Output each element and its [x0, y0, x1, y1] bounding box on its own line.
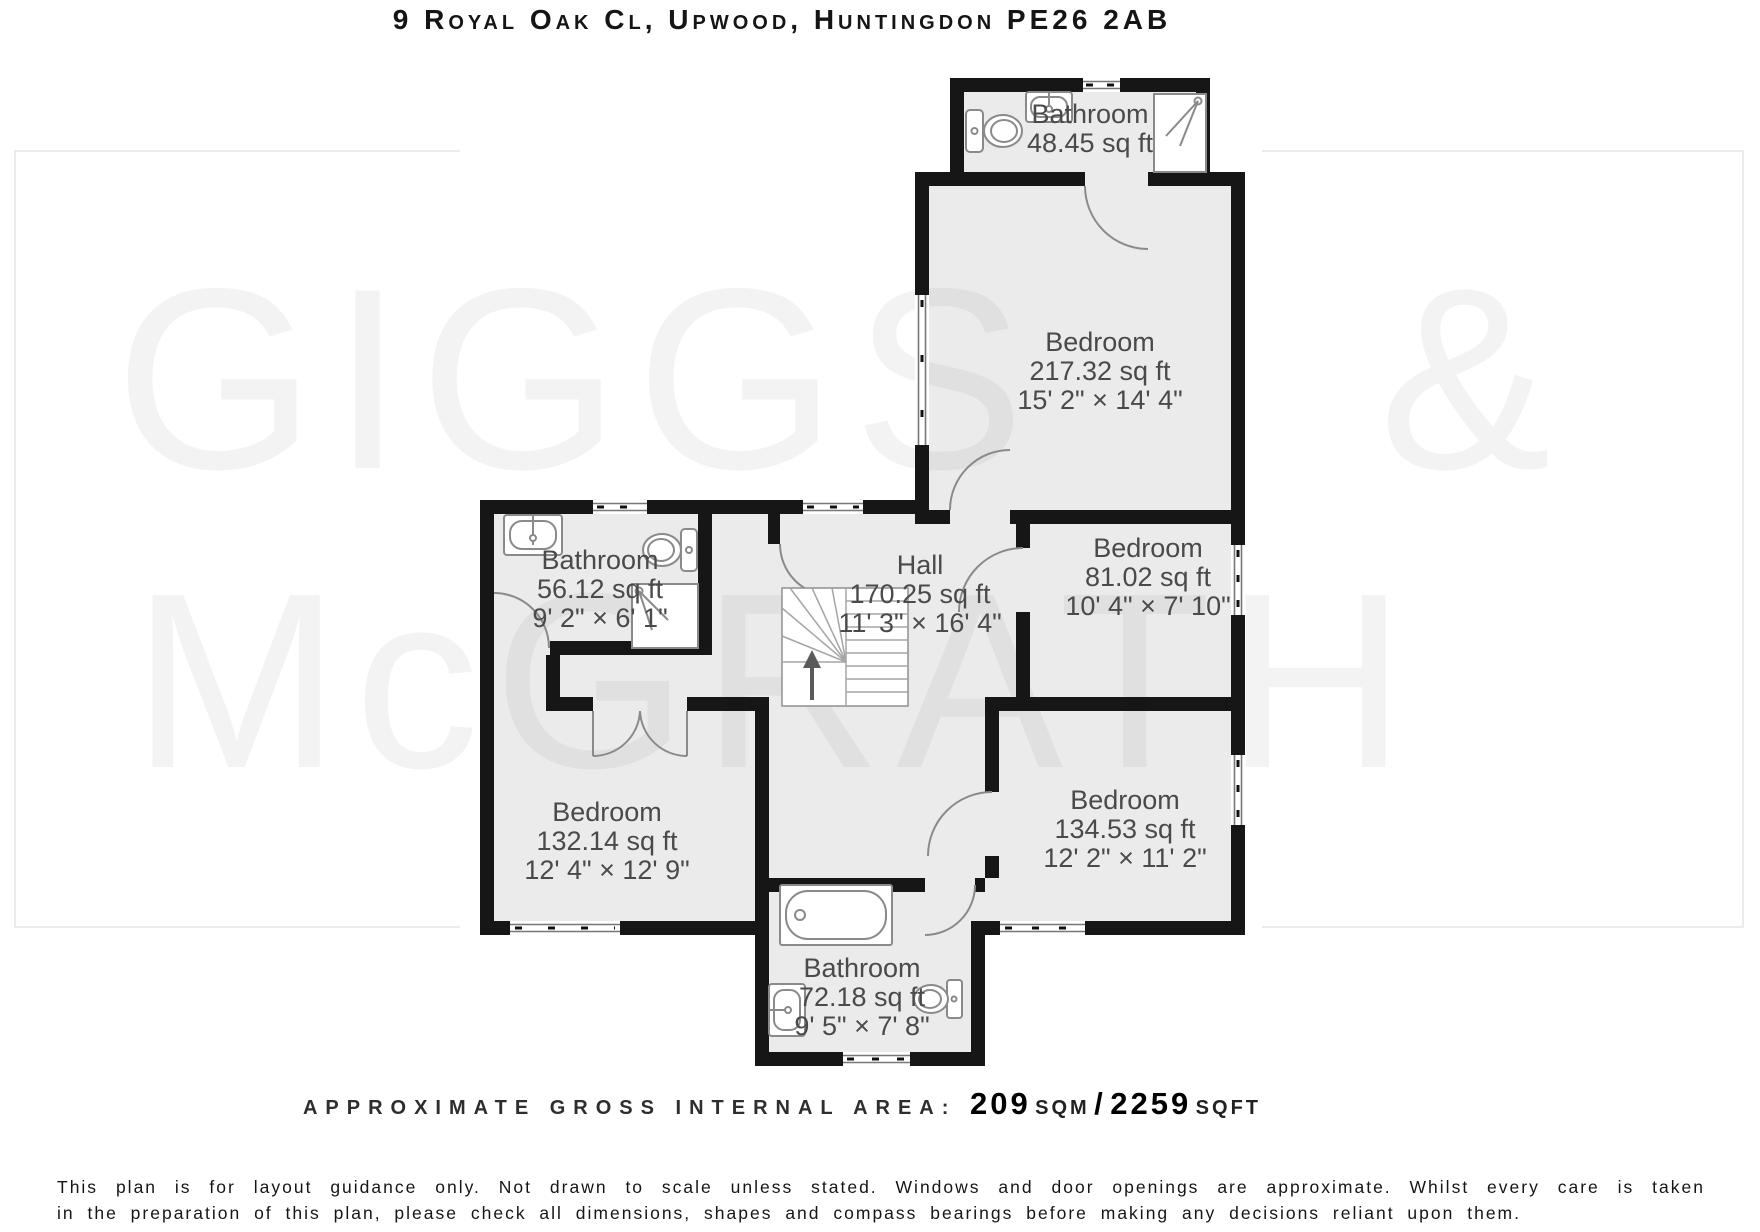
window-icon [1000, 921, 1085, 935]
room-label-bathroom-middle: Bathroom 56.12 sq ft 9' 2" × 6' 1" [532, 546, 667, 633]
area-separator: / [1094, 1086, 1106, 1121]
room-area: 134.53 sq ft [1043, 815, 1206, 844]
area-sqft-unit: SQFT [1196, 1097, 1261, 1119]
area-sqm-value: 209 [970, 1086, 1031, 1121]
room-name: Bedroom [1065, 534, 1230, 563]
disclaimer-text: This plan is for layout guidance only. N… [57, 1174, 1705, 1226]
area-sqft-value: 2259 [1110, 1086, 1191, 1121]
room-area: 170.25 sq ft [838, 580, 1001, 609]
room-dims: 15' 2" × 14' 4" [1017, 386, 1182, 415]
room-label-hall: Hall 170.25 sq ft 11' 3" × 16' 4" [838, 551, 1001, 638]
room-name: Bedroom [524, 798, 689, 827]
room-area: 72.18 sq ft [794, 983, 929, 1012]
room-dims: 11' 3" × 16' 4" [838, 609, 1001, 638]
room-label-bathroom-ensuite: Bathroom 48.45 sq ft [1027, 100, 1153, 158]
room-dims: 9' 5" × 7' 8" [794, 1012, 929, 1041]
bathtub-icon [780, 885, 892, 945]
room-dims: 12' 4" × 12' 9" [524, 856, 689, 885]
room-dims: 12' 2" × 11' 2" [1043, 844, 1206, 873]
window-icon [843, 1052, 910, 1066]
room-area: 81.02 sq ft [1065, 563, 1230, 592]
disclaimer-line-1: This plan is for layout guidance only. N… [57, 1174, 1705, 1200]
window-icon [1231, 755, 1245, 825]
window-icon [803, 500, 863, 514]
room-dims: 9' 2" × 6' 1" [532, 604, 667, 633]
window-icon [1083, 78, 1120, 92]
room-name: Bedroom [1017, 328, 1182, 357]
area-label: APPROXIMATE GROSS INTERNAL AREA: [303, 1097, 970, 1119]
room-area: 217.32 sq ft [1017, 357, 1182, 386]
room-label-bedroom-left: Bedroom 132.14 sq ft 12' 4" × 12' 9" [524, 798, 689, 885]
window-icon [915, 295, 929, 445]
floorplan-page: GIGGS & McGRATH 9 Royal Oak Cl, Upwood, … [0, 0, 1760, 1232]
room-label-bathroom-bottom: Bathroom 72.18 sq ft 9' 5" × 7' 8" [794, 954, 929, 1041]
room-name: Bathroom [1027, 100, 1153, 129]
gross-internal-area-line: APPROXIMATE GROSS INTERNAL AREA: 209 SQM… [0, 1086, 1564, 1122]
window-icon [1231, 545, 1245, 615]
window-icon [593, 500, 647, 514]
room-label-bedroom-master: Bedroom 217.32 sq ft 15' 2" × 14' 4" [1017, 328, 1182, 415]
room-name: Bathroom [794, 954, 929, 983]
room-name: Hall [838, 551, 1001, 580]
room-name: Bedroom [1043, 786, 1206, 815]
room-label-bedroom-right: Bedroom 81.02 sq ft 10' 4" × 7' 10" [1065, 534, 1230, 621]
room-area: 48.45 sq ft [1027, 129, 1153, 158]
disclaimer-line-2: in the preparation of this plan, please … [57, 1200, 1521, 1226]
room-label-bedroom-bottom: Bedroom 134.53 sq ft 12' 2" × 11' 2" [1043, 786, 1206, 873]
shower-icon [1154, 94, 1206, 172]
area-sqm-unit: SQM [1035, 1097, 1090, 1119]
room-dims: 10' 4" × 7' 10" [1065, 592, 1230, 621]
room-area: 132.14 sq ft [524, 827, 689, 856]
room-area: 56.12 sq ft [532, 575, 667, 604]
window-icon [510, 921, 620, 935]
room-name: Bathroom [532, 546, 667, 575]
